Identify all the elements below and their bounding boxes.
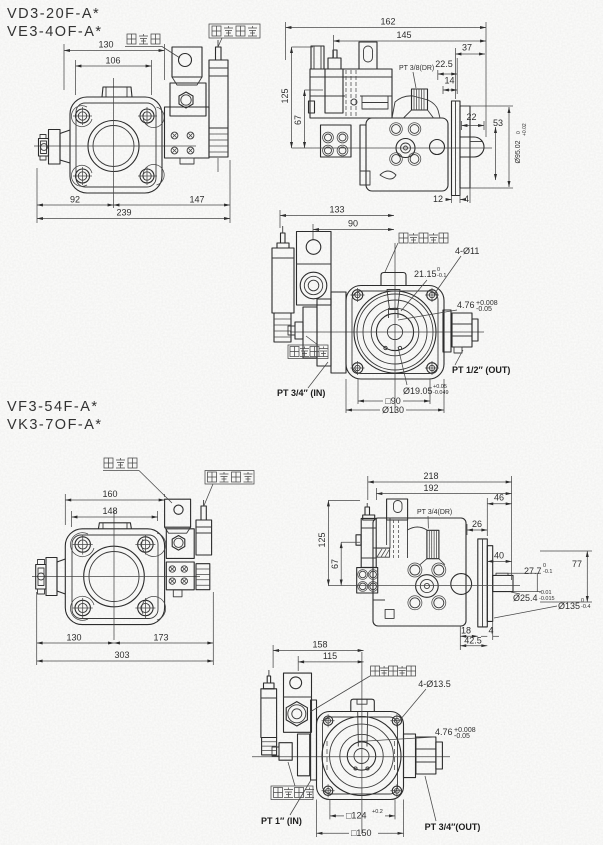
svg-text:-0.1: -0.1 <box>543 569 552 575</box>
svg-text:4: 4 <box>464 194 469 204</box>
svg-text:14: 14 <box>444 76 454 86</box>
svg-text:4-Ø11: 4-Ø11 <box>455 246 479 256</box>
svg-text:-0.05: -0.05 <box>476 306 492 313</box>
svg-text:18: 18 <box>461 626 471 636</box>
svg-text:Ø135: Ø135 <box>558 601 580 611</box>
svg-text:-0.049: -0.049 <box>433 390 449 396</box>
svg-text:PT 1/2″ (OUT): PT 1/2″ (OUT) <box>452 365 510 375</box>
svg-text:12: 12 <box>433 194 443 204</box>
svg-text:218: 218 <box>423 471 438 481</box>
svg-text:173: 173 <box>153 633 168 643</box>
svg-text:Ø130: Ø130 <box>382 405 404 415</box>
svg-text:21.15: 21.15 <box>414 269 437 279</box>
svg-text:147: 147 <box>189 195 204 205</box>
svg-text:PT 3/8(DR): PT 3/8(DR) <box>399 65 434 72</box>
svg-text:46: 46 <box>494 493 504 503</box>
svg-text:PT 3/4″(OUT): PT 3/4″(OUT) <box>425 822 481 832</box>
svg-text:VF3-54F-A*: VF3-54F-A* <box>7 399 99 415</box>
svg-text:40: 40 <box>494 551 504 561</box>
svg-text:PT 3/4″ (IN): PT 3/4″ (IN) <box>277 388 325 398</box>
svg-text:VD3-20F-A*: VD3-20F-A* <box>7 6 100 22</box>
svg-text:VE3-4OF-A*: VE3-4OF-A* <box>7 24 103 40</box>
svg-text:VK3-7OF-A*: VK3-7OF-A* <box>7 417 103 433</box>
svg-text:90: 90 <box>348 219 358 229</box>
svg-text:4.76: 4.76 <box>435 727 453 737</box>
svg-text:+0.02: +0.02 <box>522 123 528 136</box>
svg-text:42.5: 42.5 <box>464 635 482 645</box>
svg-text:0: 0 <box>516 131 522 134</box>
svg-text:PT 1″ (IN): PT 1″ (IN) <box>261 816 302 826</box>
svg-text:-0.05: -0.05 <box>454 733 470 740</box>
svg-text:22: 22 <box>466 112 476 122</box>
svg-text:□124: □124 <box>346 810 366 820</box>
svg-text:Ø95.02: Ø95.02 <box>515 140 522 163</box>
svg-text:125: 125 <box>317 532 327 547</box>
svg-text:92: 92 <box>70 195 80 205</box>
svg-text:-0.4: -0.4 <box>581 604 590 610</box>
svg-text:PT 3/4(DR): PT 3/4(DR) <box>417 509 452 516</box>
svg-text:130: 130 <box>66 633 81 643</box>
svg-text:162: 162 <box>380 17 395 27</box>
svg-text:□150: □150 <box>351 828 371 838</box>
svg-text:4.76: 4.76 <box>457 300 475 310</box>
svg-text:67: 67 <box>330 559 340 569</box>
svg-text:303: 303 <box>114 650 129 660</box>
svg-text:22.5: 22.5 <box>435 59 453 69</box>
svg-text:-0.1: -0.1 <box>437 273 446 279</box>
svg-text:4-Ø13.5: 4-Ø13.5 <box>418 679 451 689</box>
svg-text:145: 145 <box>396 30 411 40</box>
svg-text:67: 67 <box>293 115 303 125</box>
svg-text:37: 37 <box>462 43 472 53</box>
svg-text:26: 26 <box>472 519 482 529</box>
svg-text:53: 53 <box>493 118 503 128</box>
svg-text:106: 106 <box>105 56 120 66</box>
svg-text:158: 158 <box>312 640 327 650</box>
svg-text:148: 148 <box>102 506 117 516</box>
svg-text:133: 133 <box>329 205 344 215</box>
svg-text:+0.2: +0.2 <box>372 809 383 815</box>
svg-text:Ø25.4: Ø25.4 <box>513 593 538 603</box>
svg-text:239: 239 <box>116 208 131 218</box>
svg-text:4: 4 <box>488 626 493 636</box>
svg-text:160: 160 <box>102 489 117 499</box>
svg-text:192: 192 <box>423 483 438 493</box>
svg-text:115: 115 <box>323 651 337 661</box>
svg-text:125: 125 <box>280 88 290 103</box>
svg-text:Ø19.05: Ø19.05 <box>403 386 433 396</box>
svg-text:27.7: 27.7 <box>524 566 542 576</box>
svg-text:-0.015: -0.015 <box>539 596 555 602</box>
svg-text:77: 77 <box>572 559 582 569</box>
svg-text:130: 130 <box>98 40 113 50</box>
